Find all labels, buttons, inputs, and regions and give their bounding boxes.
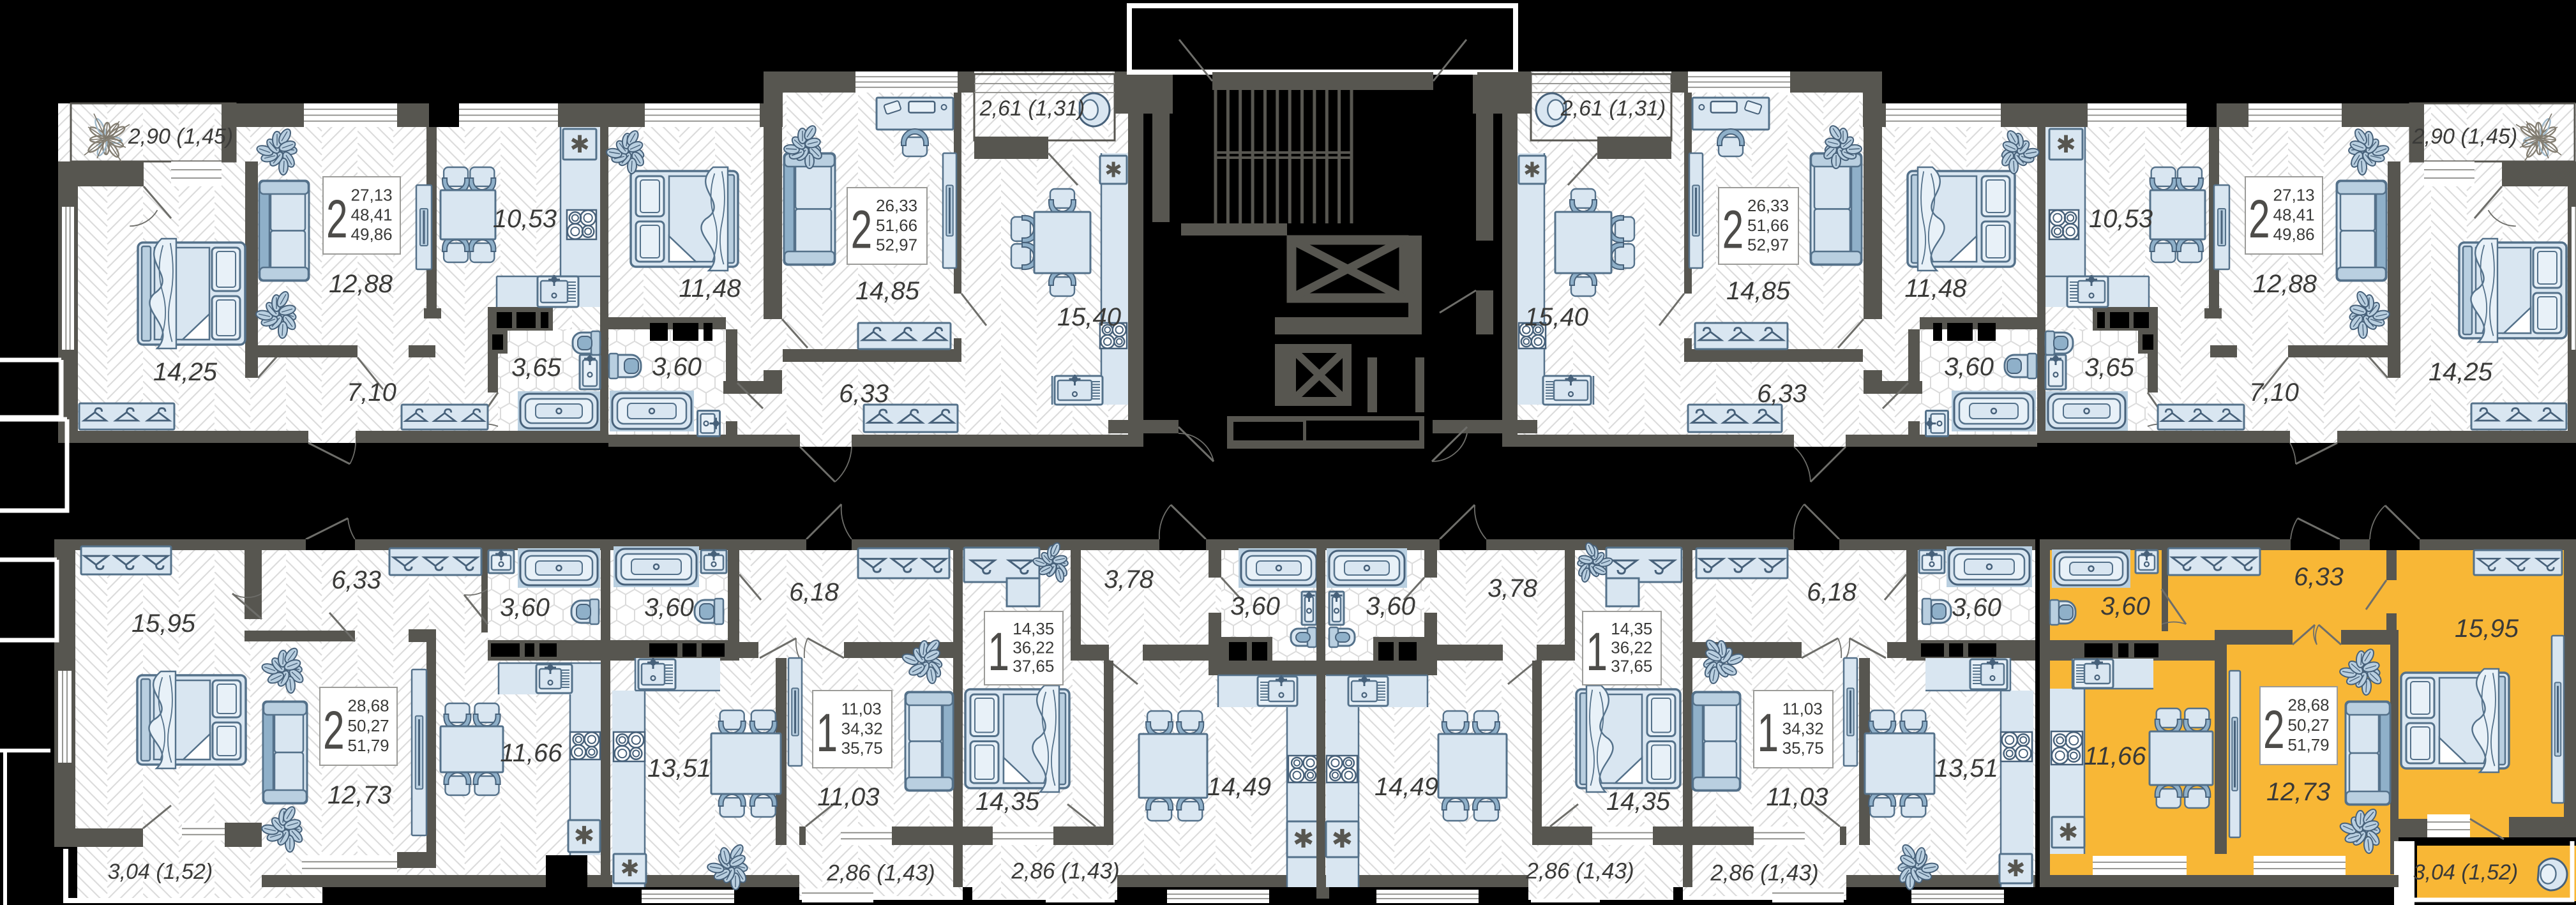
svg-text:12,73: 12,73 xyxy=(328,781,391,809)
svg-text:✱: ✱ xyxy=(569,131,589,158)
svg-text:6,18: 6,18 xyxy=(789,578,840,606)
svg-text:✱: ✱ xyxy=(1332,825,1353,853)
svg-text:2: 2 xyxy=(1722,200,1744,260)
svg-text:15,40: 15,40 xyxy=(1057,303,1121,331)
svg-text:14,35: 14,35 xyxy=(975,788,1040,816)
svg-text:27,13: 27,13 xyxy=(351,185,393,204)
svg-text:7,10: 7,10 xyxy=(2249,378,2299,407)
svg-text:14,49: 14,49 xyxy=(1207,773,1271,801)
svg-text:50,27: 50,27 xyxy=(348,716,389,735)
svg-text:51,66: 51,66 xyxy=(876,216,917,235)
svg-text:15,40: 15,40 xyxy=(1525,303,1588,331)
svg-text:14,49: 14,49 xyxy=(1375,773,1438,801)
svg-text:✱: ✱ xyxy=(1104,158,1122,182)
svg-text:1: 1 xyxy=(1586,622,1608,682)
svg-text:14,85: 14,85 xyxy=(855,277,920,305)
svg-text:2,86 (1,43): 2,86 (1,43) xyxy=(826,861,935,886)
svg-text:10,53: 10,53 xyxy=(2089,205,2153,233)
svg-text:6,33: 6,33 xyxy=(1757,380,1807,408)
svg-text:6,18: 6,18 xyxy=(1807,578,1857,606)
svg-text:2: 2 xyxy=(2263,699,2285,759)
svg-text:3,60: 3,60 xyxy=(1944,353,1994,381)
svg-text:3,65: 3,65 xyxy=(2084,354,2135,382)
svg-text:2,86 (1,43): 2,86 (1,43) xyxy=(1525,859,1634,884)
svg-text:26,33: 26,33 xyxy=(876,196,917,215)
svg-text:11,66: 11,66 xyxy=(500,739,562,767)
svg-text:28,68: 28,68 xyxy=(2288,696,2330,715)
svg-text:12,73: 12,73 xyxy=(2266,778,2330,806)
svg-text:✱: ✱ xyxy=(1293,825,1314,853)
svg-text:14,85: 14,85 xyxy=(1726,277,1791,305)
svg-text:3,78: 3,78 xyxy=(1104,565,1154,594)
svg-text:1: 1 xyxy=(988,622,1009,682)
svg-text:51,66: 51,66 xyxy=(1747,216,1789,235)
svg-text:3,60: 3,60 xyxy=(1952,594,2001,622)
svg-text:3,60: 3,60 xyxy=(1366,592,1415,620)
svg-text:2,61 (1,31): 2,61 (1,31) xyxy=(979,96,1085,121)
svg-text:✱: ✱ xyxy=(2056,131,2075,158)
svg-text:51,79: 51,79 xyxy=(2288,735,2330,754)
svg-text:27,13: 27,13 xyxy=(2273,185,2315,204)
svg-text:37,65: 37,65 xyxy=(1013,657,1054,676)
svg-text:52,97: 52,97 xyxy=(876,235,917,254)
svg-text:48,41: 48,41 xyxy=(2273,205,2315,224)
svg-text:3,04 (1,52): 3,04 (1,52) xyxy=(2413,860,2518,885)
svg-text:51,79: 51,79 xyxy=(348,736,389,755)
svg-text:14,35: 14,35 xyxy=(1606,788,1671,816)
svg-text:✱: ✱ xyxy=(2006,856,2025,881)
svg-text:34,32: 34,32 xyxy=(1782,719,1824,738)
svg-text:2,90 (1,45): 2,90 (1,45) xyxy=(128,124,233,149)
svg-text:14,35: 14,35 xyxy=(1013,619,1054,638)
svg-text:3,60: 3,60 xyxy=(2100,592,2150,620)
svg-text:49,86: 49,86 xyxy=(351,225,393,244)
svg-text:35,75: 35,75 xyxy=(841,738,883,758)
svg-text:15,95: 15,95 xyxy=(2455,615,2519,643)
svg-text:6,33: 6,33 xyxy=(331,566,381,594)
svg-text:15,95: 15,95 xyxy=(132,610,196,638)
svg-text:36,22: 36,22 xyxy=(1013,638,1054,657)
svg-text:1: 1 xyxy=(1757,703,1779,763)
svg-text:11,66: 11,66 xyxy=(2084,742,2146,770)
svg-text:3,60: 3,60 xyxy=(644,594,694,622)
svg-text:14,35: 14,35 xyxy=(1611,619,1652,638)
svg-text:52,97: 52,97 xyxy=(1747,235,1789,254)
svg-text:3,78: 3,78 xyxy=(1488,574,1538,602)
svg-text:11,03: 11,03 xyxy=(1782,699,1823,718)
svg-text:✱: ✱ xyxy=(574,823,595,850)
svg-text:28,68: 28,68 xyxy=(348,696,389,715)
svg-text:2: 2 xyxy=(326,189,348,249)
svg-text:3,60: 3,60 xyxy=(500,594,550,622)
svg-text:12,88: 12,88 xyxy=(329,270,393,298)
svg-text:34,32: 34,32 xyxy=(841,719,883,738)
svg-text:2: 2 xyxy=(323,700,345,760)
svg-text:3,60: 3,60 xyxy=(1230,592,1280,620)
svg-text:11,03: 11,03 xyxy=(841,699,882,718)
svg-text:11,48: 11,48 xyxy=(679,274,741,303)
svg-text:11,03: 11,03 xyxy=(817,783,879,811)
svg-text:✱: ✱ xyxy=(620,856,639,881)
svg-text:2,86 (1,43): 2,86 (1,43) xyxy=(1011,859,1119,884)
svg-text:2,90 (1,45): 2,90 (1,45) xyxy=(2412,124,2517,149)
svg-text:37,65: 37,65 xyxy=(1611,657,1652,676)
svg-text:2,61 (1,31): 2,61 (1,31) xyxy=(1560,96,1666,121)
svg-text:11,03: 11,03 xyxy=(1766,783,1828,811)
svg-text:14,25: 14,25 xyxy=(153,358,218,386)
svg-text:✱: ✱ xyxy=(1523,158,1540,182)
svg-text:48,41: 48,41 xyxy=(351,205,393,224)
svg-text:14,25: 14,25 xyxy=(2429,358,2493,386)
svg-text:26,33: 26,33 xyxy=(1747,196,1789,215)
svg-text:13,51: 13,51 xyxy=(1934,754,1998,782)
svg-text:49,86: 49,86 xyxy=(2273,225,2315,244)
svg-text:3,65: 3,65 xyxy=(511,354,562,382)
svg-text:35,75: 35,75 xyxy=(1782,738,1824,758)
svg-text:3,60: 3,60 xyxy=(652,353,702,381)
svg-text:10,53: 10,53 xyxy=(493,205,557,233)
svg-text:6,33: 6,33 xyxy=(839,380,889,408)
svg-text:13,51: 13,51 xyxy=(647,754,711,782)
svg-text:50,27: 50,27 xyxy=(2288,715,2330,735)
svg-text:12,88: 12,88 xyxy=(2253,270,2317,298)
svg-text:11,48: 11,48 xyxy=(1904,274,1967,303)
svg-text:2,86 (1,43): 2,86 (1,43) xyxy=(1710,861,1818,886)
svg-text:2: 2 xyxy=(2248,189,2270,249)
svg-text:7,10: 7,10 xyxy=(347,378,396,407)
svg-text:6,33: 6,33 xyxy=(2294,563,2344,591)
svg-text:1: 1 xyxy=(816,703,838,763)
svg-text:36,22: 36,22 xyxy=(1611,638,1652,657)
svg-text:2: 2 xyxy=(851,200,873,260)
svg-text:3,04 (1,52): 3,04 (1,52) xyxy=(108,860,213,884)
svg-text:✱: ✱ xyxy=(2058,819,2078,846)
